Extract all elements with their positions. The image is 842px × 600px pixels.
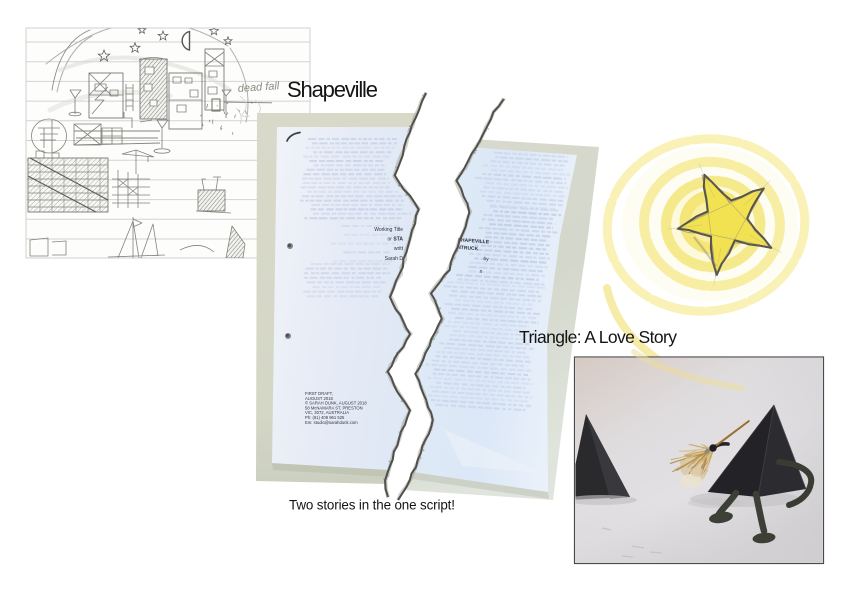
svg-text:Shapeville: Shapeville [287, 77, 378, 102]
svg-text:Sarah D: Sarah D [385, 256, 404, 262]
svg-text:Em: studio@sarahdunk.com: Em: studio@sarahdunk.com [305, 420, 358, 425]
svg-text:Triangle: A Love Story: Triangle: A Love Story [519, 327, 677, 347]
svg-text:writt: writt [394, 246, 404, 252]
svg-text:or STA: or STA [388, 237, 404, 243]
svg-text:Working Title: Working Title [374, 227, 403, 233]
svg-text:by: by [483, 256, 489, 262]
svg-text:Two stories in the one script!: Two stories in the one script! [289, 498, 455, 513]
